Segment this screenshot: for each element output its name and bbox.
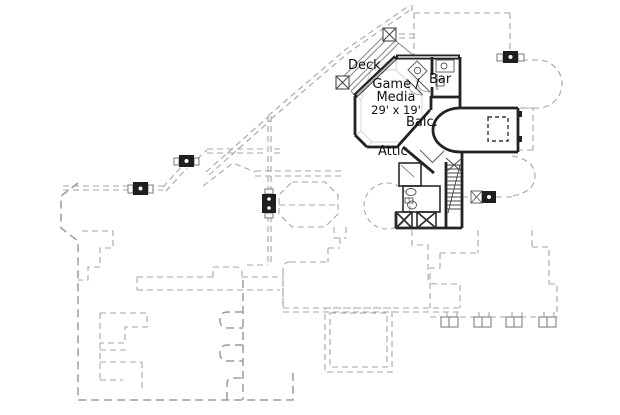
lower-floor-footprint-left-edge xyxy=(61,183,293,400)
bathroom-fixtures xyxy=(405,189,417,210)
closet-walls xyxy=(399,163,421,186)
room-label-balcony: Balc. xyxy=(406,116,438,130)
shaft-boxes xyxy=(396,212,436,228)
right-room-walls xyxy=(433,108,518,152)
lower-floor-footprint-right xyxy=(412,230,557,317)
chimney-left-1 xyxy=(128,182,153,195)
porch-columns xyxy=(441,317,556,327)
chimney-right-lower xyxy=(471,191,496,203)
chimney-top-right xyxy=(497,51,524,63)
room-label-deck: Deck. xyxy=(348,59,385,73)
room-label-attic: Attic xyxy=(378,145,408,159)
floor-plan-drawing xyxy=(0,0,620,415)
chimney-center xyxy=(262,189,276,218)
staircase xyxy=(446,158,462,213)
lower-floor-footprint-middle xyxy=(283,308,460,372)
turret-roof-octagon xyxy=(279,182,346,308)
lower-floor-footprint-left-steps xyxy=(78,231,283,392)
roof-ridge-lines-left-wing xyxy=(63,5,413,266)
attic-access-hatch xyxy=(488,117,508,141)
attic-door-swings xyxy=(420,150,444,163)
room-label-bar: Bar xyxy=(429,73,451,87)
chimney-left-2 xyxy=(174,155,199,167)
floor-plan-canvas: Deck. Game / Media 29' x 19' Bar Balc. A… xyxy=(0,0,620,415)
